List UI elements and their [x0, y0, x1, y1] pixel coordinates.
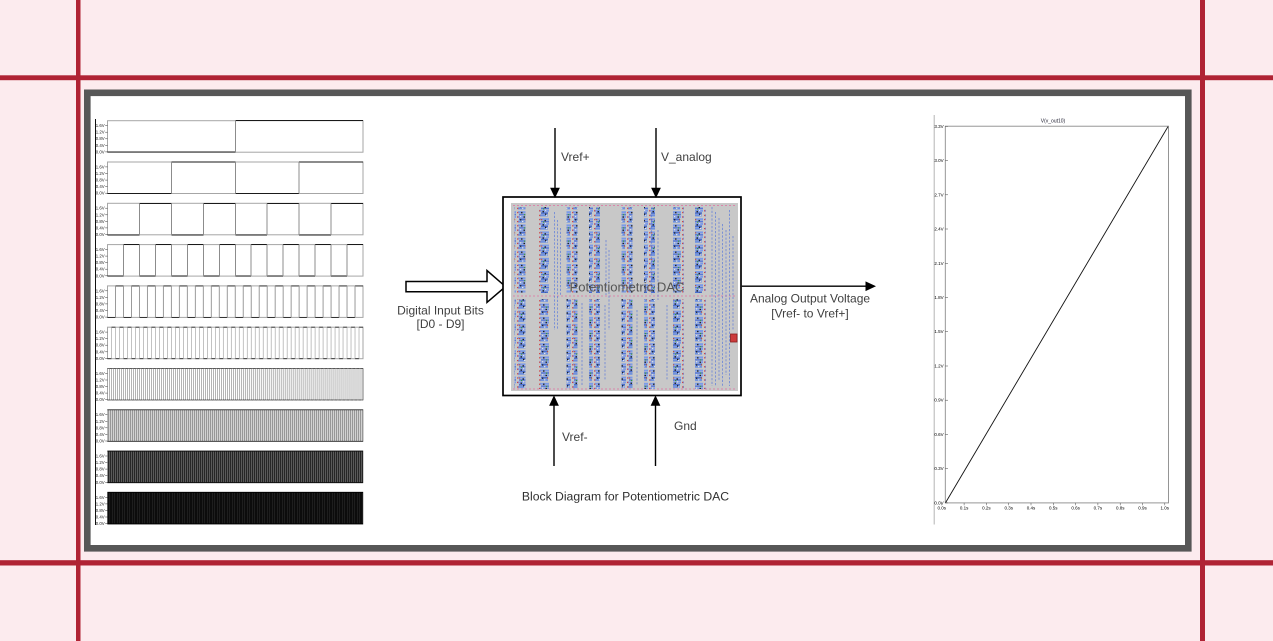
svg-text:0.1s: 0.1s: [960, 506, 969, 511]
svg-text:0.2s: 0.2s: [982, 506, 991, 511]
svg-text:0.0V: 0.0V: [96, 273, 105, 278]
svg-text:0.0V: 0.0V: [96, 397, 105, 402]
svg-text:1.6V: 1.6V: [96, 288, 105, 293]
svg-text:3.3V: 3.3V: [934, 124, 943, 129]
svg-text:Gnd: Gnd: [674, 419, 697, 433]
svg-text:V_analog: V_analog: [661, 150, 712, 164]
svg-text:0.5s: 0.5s: [1049, 506, 1058, 511]
svg-text:0.0V: 0.0V: [96, 191, 105, 196]
svg-text:Vref+: Vref+: [561, 150, 590, 164]
svg-text:1.8V: 1.8V: [934, 295, 943, 300]
svg-text:0.6s: 0.6s: [1071, 506, 1080, 511]
svg-text:2.4V: 2.4V: [934, 227, 943, 232]
svg-text:0.8s: 0.8s: [1116, 506, 1125, 511]
svg-text:0.0V: 0.0V: [96, 356, 105, 361]
svg-text:1.6V: 1.6V: [96, 123, 105, 128]
svg-text:0.7s: 0.7s: [1094, 506, 1103, 511]
svg-text:1.2V: 1.2V: [96, 130, 105, 135]
svg-text:0.0V: 0.0V: [96, 232, 105, 237]
svg-text:0.0V: 0.0V: [96, 149, 105, 154]
svg-text:0.3s: 0.3s: [1004, 506, 1013, 511]
svg-text:0.0V: 0.0V: [96, 480, 105, 485]
svg-text:0.4V: 0.4V: [96, 143, 105, 148]
svg-text:[Vref- to Vref+]: [Vref- to Vref+]: [771, 307, 848, 321]
svg-text:0.0V: 0.0V: [96, 521, 105, 526]
svg-text:1.6V: 1.6V: [96, 495, 105, 500]
svg-text:1.6V: 1.6V: [96, 412, 105, 417]
svg-text:0.8V: 0.8V: [96, 508, 105, 513]
svg-text:1.2V: 1.2V: [96, 501, 105, 506]
svg-text:0.4V: 0.4V: [96, 308, 105, 313]
svg-text:Vref-: Vref-: [562, 430, 588, 444]
svg-text:0.8V: 0.8V: [96, 301, 105, 306]
svg-text:0.0s: 0.0s: [938, 506, 947, 511]
svg-text:0.4V: 0.4V: [96, 515, 105, 520]
svg-text:0.3V: 0.3V: [934, 466, 943, 471]
svg-text:1.6V: 1.6V: [96, 371, 105, 376]
svg-text:0.4V: 0.4V: [96, 391, 105, 396]
svg-text:1.0s: 1.0s: [1161, 506, 1170, 511]
svg-text:0.4V: 0.4V: [96, 473, 105, 478]
svg-text:1.2V: 1.2V: [96, 212, 105, 217]
svg-text:0.8V: 0.8V: [96, 343, 105, 348]
svg-text:V(v_out10): V(v_out10): [1041, 119, 1066, 125]
svg-text:1.6V: 1.6V: [96, 330, 105, 335]
svg-text:Block Diagram for Potentiometr: Block Diagram for Potentiometric DAC: [522, 490, 729, 504]
svg-text:1.6V: 1.6V: [96, 454, 105, 459]
svg-text:0.4s: 0.4s: [1027, 506, 1036, 511]
svg-text:0.9s: 0.9s: [1138, 506, 1147, 511]
svg-text:0.4V: 0.4V: [96, 225, 105, 230]
svg-text:0.8V: 0.8V: [96, 425, 105, 430]
svg-text:1.5V: 1.5V: [934, 329, 943, 334]
svg-text:0.0V: 0.0V: [96, 439, 105, 444]
svg-text:0.8V: 0.8V: [96, 219, 105, 224]
svg-text:1.2V: 1.2V: [96, 336, 105, 341]
svg-text:1.2V: 1.2V: [96, 419, 105, 424]
svg-text:0.4V: 0.4V: [96, 349, 105, 354]
svg-text:1.2V: 1.2V: [96, 460, 105, 465]
svg-text:[D0 - D9]: [D0 - D9]: [416, 317, 464, 331]
svg-text:2.7V: 2.7V: [934, 192, 943, 197]
svg-text:0.0V: 0.0V: [96, 315, 105, 320]
svg-text:1.2V: 1.2V: [934, 364, 943, 369]
svg-text:0.8V: 0.8V: [96, 136, 105, 141]
svg-text:0.9V: 0.9V: [934, 398, 943, 403]
svg-text:0.4V: 0.4V: [96, 432, 105, 437]
svg-text:Potentiometric DAC: Potentiometric DAC: [570, 280, 685, 295]
svg-text:1.2V: 1.2V: [96, 295, 105, 300]
svg-text:1.2V: 1.2V: [96, 171, 105, 176]
svg-text:3.0V: 3.0V: [934, 158, 943, 163]
svg-text:0.8V: 0.8V: [96, 467, 105, 472]
svg-text:0.8V: 0.8V: [96, 384, 105, 389]
svg-text:1.6V: 1.6V: [96, 206, 105, 211]
svg-text:0.4V: 0.4V: [96, 184, 105, 189]
svg-text:0.6V: 0.6V: [934, 432, 943, 437]
svg-text:Digital Input Bits: Digital Input Bits: [397, 304, 484, 318]
svg-text:0.4V: 0.4V: [96, 267, 105, 272]
svg-text:1.6V: 1.6V: [96, 164, 105, 169]
svg-text:1.6V: 1.6V: [96, 247, 105, 252]
svg-text:1.2V: 1.2V: [96, 378, 105, 383]
svg-text:1.2V: 1.2V: [96, 254, 105, 259]
svg-text:0.8V: 0.8V: [96, 260, 105, 265]
svg-text:Analog Output Voltage: Analog Output Voltage: [750, 292, 870, 306]
svg-text:0.8V: 0.8V: [96, 178, 105, 183]
svg-text:2.1V: 2.1V: [934, 261, 943, 266]
